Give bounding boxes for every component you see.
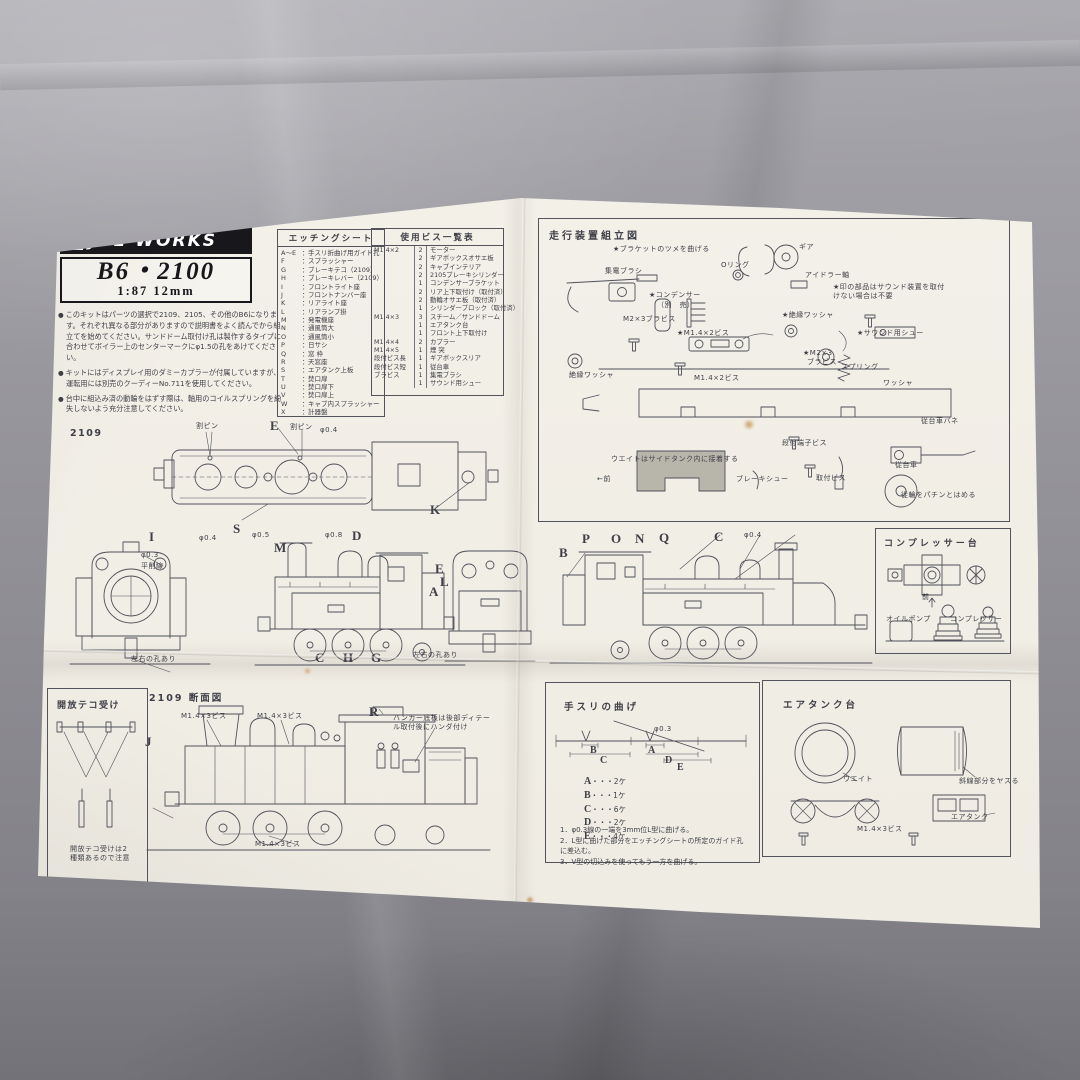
diagram-label: E (270, 418, 279, 434)
handrail-count-value: 6ケ (614, 805, 626, 814)
screw-part: ギアボックスオサエ板 (427, 254, 503, 262)
etching-item: F：スプラッシャー (281, 257, 382, 265)
diagram-label: 集電ブラシ (605, 267, 642, 276)
screw-table-row: 段付ビス長1ギアボックスリア (372, 354, 503, 362)
screw-qty: 1 (414, 304, 427, 312)
screw-table-row: 1フロント上下取付け (372, 329, 503, 337)
etching-item-label: 日サシ (308, 341, 328, 349)
compressor-base-panel: コンプレッサー台 前オイルポンプコンプレッサー (875, 528, 1011, 654)
etching-item-key: O (281, 333, 302, 341)
diagram-label: C (315, 650, 324, 666)
etching-item-key: P (281, 341, 302, 349)
etching-item-label: フロントライト座 (308, 283, 360, 291)
diagram-label: M1.4×3ビス (255, 840, 301, 849)
screw-size: M1.4×3 (372, 313, 414, 321)
screw-qty: 1 (414, 363, 427, 371)
etching-item-label: ブレーキテコ（2109） (308, 266, 377, 274)
screw-part: 従台車 (427, 363, 503, 371)
model-scale: 1:87 12mm (62, 285, 250, 298)
screw-size: ブラビス (372, 371, 414, 379)
intro-note: キットにはディスプレイ用のダミーカプラーが付属していますが、運転用には別売のクー… (58, 368, 285, 390)
etching-item-key: X (281, 408, 302, 416)
etching-item-key: H (281, 274, 302, 282)
etching-item: O：通風筒小 (281, 333, 382, 341)
etching-item-label: 窓 枠 (308, 350, 323, 358)
etching-item: L：リアランプ掛 (281, 308, 382, 316)
diagram-label: φ0.4 (320, 426, 338, 435)
screw-part: 集電ブラシ (427, 371, 503, 379)
diagram-label: L (440, 574, 449, 590)
etching-item-label: リアライト座 (308, 299, 347, 307)
screw-qty: 2 (414, 254, 427, 262)
screw-part: フロント上下取付け (427, 329, 503, 337)
diagram-label: 絶縁ワッシャ (569, 371, 614, 380)
diagram-label: Oリング (721, 261, 750, 270)
diagram-label: 取付ビス (816, 474, 846, 483)
screw-qty: 2 (414, 246, 427, 254)
etching-item-key: Q (281, 350, 302, 358)
screw-table-row: ブラビス1集電ブラシ (372, 371, 503, 379)
screw-part: 煙 突 (427, 346, 503, 354)
etching-item-key: N (281, 324, 302, 332)
etching-item: G：ブレーキテコ（2109） (281, 266, 382, 274)
running-gear-assembly-panel: 走行装置組立図 (538, 218, 1010, 522)
screw-part: カプラー (427, 338, 503, 346)
diagram-label: D (665, 755, 673, 768)
etching-item-key: A〜E (281, 249, 302, 257)
diagram-label: B (590, 745, 597, 758)
screw-table-row: 1シリンダーブロック（取付済） (372, 304, 503, 312)
diagram-label: D (352, 528, 361, 544)
diagram-label: ★M2×3 (803, 349, 833, 358)
handrail-count-separator: ・・・ (591, 791, 614, 800)
screw-qty: 1 (414, 321, 427, 329)
diagram-label: バンカー底板は後部ディテール取付後にハンダ付け (393, 714, 497, 732)
screw-qty: 1 (414, 279, 427, 287)
etching-sheet-title: エッチングシート (278, 230, 384, 247)
etching-sheet-list: A〜E：手スリ折曲げ用ガイド孔F：スプラッシャーG：ブレーキテコ（2109）H：… (278, 247, 384, 417)
screw-qty: 1 (414, 354, 427, 362)
screw-size (372, 304, 414, 312)
screw-part: サウンド用シュー (427, 379, 503, 387)
diagram-label: スプリング (841, 363, 879, 372)
right-side-view: BPONQCφ0.4 (545, 523, 877, 680)
etching-item-label: 焚口扉上 (308, 391, 334, 399)
screw-size (372, 271, 414, 279)
screw-size (372, 279, 414, 287)
etching-item: H：ブレーキレバー（2109） (281, 274, 382, 282)
diagram-label: B (559, 545, 568, 561)
screw-size (372, 379, 414, 387)
handrail-step: 1．φ0.3線の一端を3mm位L型に曲げる。 (560, 825, 750, 836)
screw-qty: 1 (414, 371, 427, 379)
screw-size: M1.4×4 (372, 338, 414, 346)
etching-item-label: リアランプ掛 (308, 308, 347, 316)
screw-table-row: 段付ビス短1従台車 (372, 363, 503, 371)
diagram-label: A (429, 584, 438, 600)
diagram-label: 前 (922, 593, 930, 602)
screw-qty: 2 (414, 288, 427, 296)
diagram-label: ★コンデンサー (649, 291, 701, 300)
screw-table-row: 2キャブインテリア (372, 263, 503, 271)
etching-item-key: L (281, 308, 302, 316)
diagram-label: E (677, 762, 684, 775)
diagram-label: ウエイトはサイドタンク内に接着する (611, 455, 739, 464)
diagram-label: φ0.3 (654, 725, 672, 734)
screw-table-row: 2ギアボックスオサエ板 (372, 254, 503, 262)
diagram-label: ブラビス (807, 358, 837, 367)
etching-item: N：通風筒大 (281, 324, 382, 332)
etching-item: R：天窓座 (281, 358, 382, 366)
diagram-label: P (582, 531, 590, 547)
screw-qty: 2 (414, 263, 427, 271)
screw-table-body: M1.4×22モーター2ギアボックスオサエ板2キャブインテリア22105ブレーキ… (372, 246, 503, 388)
top-view-drawing: 割ピンE割ピンφ0.4SK (150, 418, 502, 536)
screw-size (372, 321, 414, 329)
diagram-label: （別 売） (657, 301, 695, 310)
diagram-label: φ0.4 (199, 534, 217, 543)
diagram-label: φ0.3 (141, 551, 159, 560)
etching-item-label: 計器盤 (308, 408, 328, 416)
diagram-label: R (369, 704, 378, 720)
handrail-count-key: B (584, 790, 591, 801)
screw-table-title: 使用ビス一覧表 (372, 229, 503, 246)
screw-part: リア上下取付け（取付済） (427, 288, 507, 296)
screw-part: ギアボックスリア (427, 354, 503, 362)
screw-size: 段付ビス短 (372, 363, 414, 371)
diagram-label: 従台車 (895, 461, 918, 470)
etching-item-label: 通風筒小 (308, 333, 334, 341)
etching-item-key: F (281, 257, 302, 265)
diagram-label: N (635, 531, 644, 547)
etching-item-label: フロントナンバー座 (308, 291, 367, 299)
handrail-steps: 1．φ0.3線の一端を3mm位L型に曲げる。2．L型に曲げた部分をエッチングシー… (560, 825, 750, 867)
handrail-bending-panel: 手スリの曲げ φ0.3BCADE A・・・2ケB・・・1ケC・・・6ケD・・・2… (545, 682, 760, 863)
compressor-diagram (876, 529, 1010, 653)
etching-item-key: T (281, 375, 302, 383)
diagram-label: M1.4×3ビス (181, 712, 227, 721)
diagram-label: φ0.4 (744, 531, 762, 540)
etching-item: I：フロントライト座 (281, 283, 382, 291)
uncoupling-lever-panel: 開放テコ受け 開放テコ受けは2種類あるので注意 (47, 688, 148, 883)
screw-table-row: 2リア上下取付け（取付済） (372, 288, 503, 296)
lever-note: 開放テコ受けは2種類あるので注意 (70, 845, 132, 863)
screw-part: シリンダーブロック（取付済） (427, 304, 519, 312)
diagram-label: K (430, 502, 440, 518)
etching-item: A〜E：手スリ折曲げ用ガイド孔 (281, 249, 382, 257)
variant-number: 2109 (70, 428, 102, 439)
etching-item: Q：窓 枠 (281, 350, 382, 358)
diagram-label: M (274, 540, 286, 556)
screw-size (372, 296, 414, 304)
diagram-label: M1.4×3ビス (257, 712, 303, 721)
screw-qty: 1 (414, 379, 427, 387)
screw-part: コンデンサーブラケット (427, 279, 503, 287)
screw-table-row: 1コンデンサーブラケット (372, 279, 503, 287)
etching-item-key: U (281, 383, 302, 391)
diagram-label: M1.4×2ビス (694, 374, 740, 383)
diagram-label: ★ブラケットのツメを曲げる (613, 245, 710, 254)
diagram-label: ワッシャ (883, 379, 913, 388)
screw-table-row: 1サウンド用シュー (372, 379, 503, 387)
screw-size: 段付ビス長 (372, 354, 414, 362)
diagram-label: J (145, 734, 152, 750)
etching-item-key: M (281, 316, 302, 324)
screw-qty: 2 (414, 296, 427, 304)
diagram-label: 割ピン (196, 422, 219, 431)
diagram-label: 従台車バネ (921, 417, 959, 426)
diagram-label: M2×3ブラビス (623, 315, 676, 324)
etching-item-key: K (281, 299, 302, 307)
cross-section-drawing: 2109 断面図 (145, 688, 497, 873)
screw-table-panel: 使用ビス一覧表 M1.4×22モーター2ギアボックスオサエ板2キャブインテリア2… (371, 228, 504, 396)
air-tank-base-panel: エアタンク台 ウ (762, 680, 1011, 857)
diagram-label: ★サウンド用シュー (857, 329, 924, 338)
diagram-label: ウエイト (843, 775, 873, 784)
etching-item: V：焚口扉上 (281, 391, 382, 399)
diagram-label: M1.4×3ビス (857, 825, 903, 834)
diagram-label: 平削線 (141, 562, 164, 571)
screw-size (372, 329, 414, 337)
screw-size (372, 288, 414, 296)
etching-item-key: J (281, 291, 302, 299)
diagram-label: オイルポンプ (886, 615, 931, 624)
diagram-label: 左右の孔あり (131, 655, 176, 664)
etching-item-key: R (281, 358, 302, 366)
etching-item-key: G (281, 266, 302, 274)
diagram-label: O (611, 531, 621, 547)
intro-note: このキットはパーツの選択で2109、2105、その他のB6になります。それぞれ異… (58, 310, 285, 364)
screw-part: キャブインテリア (427, 263, 503, 271)
model-name: B6・2100 (62, 259, 250, 285)
diagram-label: ←前 (597, 475, 611, 484)
diagram-label: アイドラー軸 (805, 271, 850, 280)
etching-item-key: V (281, 391, 302, 399)
etching-item-label: 天窓座 (308, 358, 328, 366)
screw-qty: 1 (414, 329, 427, 337)
etching-item: K：リアライト座 (281, 299, 382, 307)
etching-item: S：エアタンク上板 (281, 366, 382, 374)
diagram-label: エアタンク (951, 813, 989, 822)
handrail-count: B・・・1ケ (584, 789, 626, 803)
etching-item: P：日サシ (281, 341, 382, 349)
diagram-label: ★印の部品はサウンド装置を取付けない場合は不要 (833, 283, 949, 301)
screw-table-row: M1.4×42カプラー (372, 338, 503, 346)
photo-scene: JOE WORKS B6・2100 1:87 12mm このキットはパーツの選択… (0, 0, 1080, 1080)
intro-notes: このキットはパーツの選択で2109、2105、その他のB6になります。それぞれ異… (58, 310, 285, 419)
model-box: B6・2100 1:87 12mm (60, 257, 252, 303)
handrail-count: C・・・6ケ (584, 803, 626, 817)
diagram-label: I (149, 529, 154, 545)
etching-item-key: W (281, 400, 302, 408)
etching-item-label: 通風筒大 (308, 324, 334, 332)
diagram-label: φ0.8 (325, 531, 343, 540)
etching-item-label: スプラッシャー (308, 257, 354, 265)
screw-part: スチーム／サンドドーム (427, 313, 503, 321)
diagram-label: ギア (799, 243, 814, 252)
etching-item: J：フロントナンバー座 (281, 291, 382, 299)
etching-item: T：焚口扉 (281, 375, 382, 383)
etching-item-label: 焚口扉 (308, 375, 328, 383)
diagram-label: A (648, 745, 656, 758)
handrail-step: 2．L型に曲げた部分をエッチングシートの所定のガイド孔に差込む。 (560, 836, 750, 857)
handrail-step: 3．V型の切込みを使ってもう一方を曲げる。 (560, 857, 750, 868)
diagram-label: C (714, 529, 723, 545)
etching-item-label: 手スリ折曲げ用ガイド孔 (308, 249, 380, 257)
etching-item-label: キャブ内スプラッシャー (308, 400, 380, 408)
etching-item: X：計器盤 (281, 408, 382, 416)
handrail-count-value: 2ケ (614, 777, 626, 786)
screw-qty: 2 (414, 271, 427, 279)
etching-item: W：キャブ内スプラッシャー (281, 400, 382, 408)
screw-size: M1.4×2 (372, 246, 414, 254)
screw-size (372, 263, 414, 271)
diagram-label: ブレーキシュー (736, 475, 789, 484)
screw-qty: 3 (414, 313, 427, 321)
diagram-label: ★M1.4×2ビス (677, 329, 729, 338)
etching-sheet-panel: エッチングシート A〜E：手スリ折曲げ用ガイド孔F：スプラッシャーG：ブレーキテ… (277, 229, 385, 417)
handrail-count-separator: ・・・ (591, 777, 614, 786)
diagram-label: 割ピン (290, 423, 313, 432)
screw-size (372, 254, 414, 262)
diagram-label: φ0.5 (252, 531, 270, 540)
right-side-view-svg (545, 523, 877, 680)
paper-stain (742, 420, 756, 429)
diagram-label: 段付端子ビス (782, 439, 827, 448)
diagram-label: C (600, 755, 608, 768)
diagram-label: ★絶縁ワッシャ (782, 311, 834, 320)
etching-item-label: エアタンク上板 (308, 366, 354, 374)
diagram-label: 従輪をパチンとはめる (901, 491, 976, 500)
handrail-count-separator: ・・・ (591, 805, 614, 814)
paper-stain (303, 668, 312, 674)
etching-item-key: S (281, 366, 302, 374)
screw-table-row: M1.4×33スチーム／サンドドーム (372, 313, 503, 321)
handrail-count: A・・・2ケ (584, 775, 626, 789)
screw-qty: 2 (414, 338, 427, 346)
top-view-svg (150, 418, 502, 536)
screw-qty: 1 (414, 346, 427, 354)
etching-item-key: I (281, 283, 302, 291)
diagram-label: コンプレッサー (950, 615, 1002, 624)
intro-note: 台中に組込み済の動輪をはずす際は、軸用のコイルスプリングを紛失しないよう充分注意… (58, 394, 285, 416)
handrail-count-value: 1ケ (613, 791, 625, 800)
diagram-label: 斜線部分をヤスる (959, 777, 1019, 786)
diagram-label: Q (659, 530, 669, 546)
